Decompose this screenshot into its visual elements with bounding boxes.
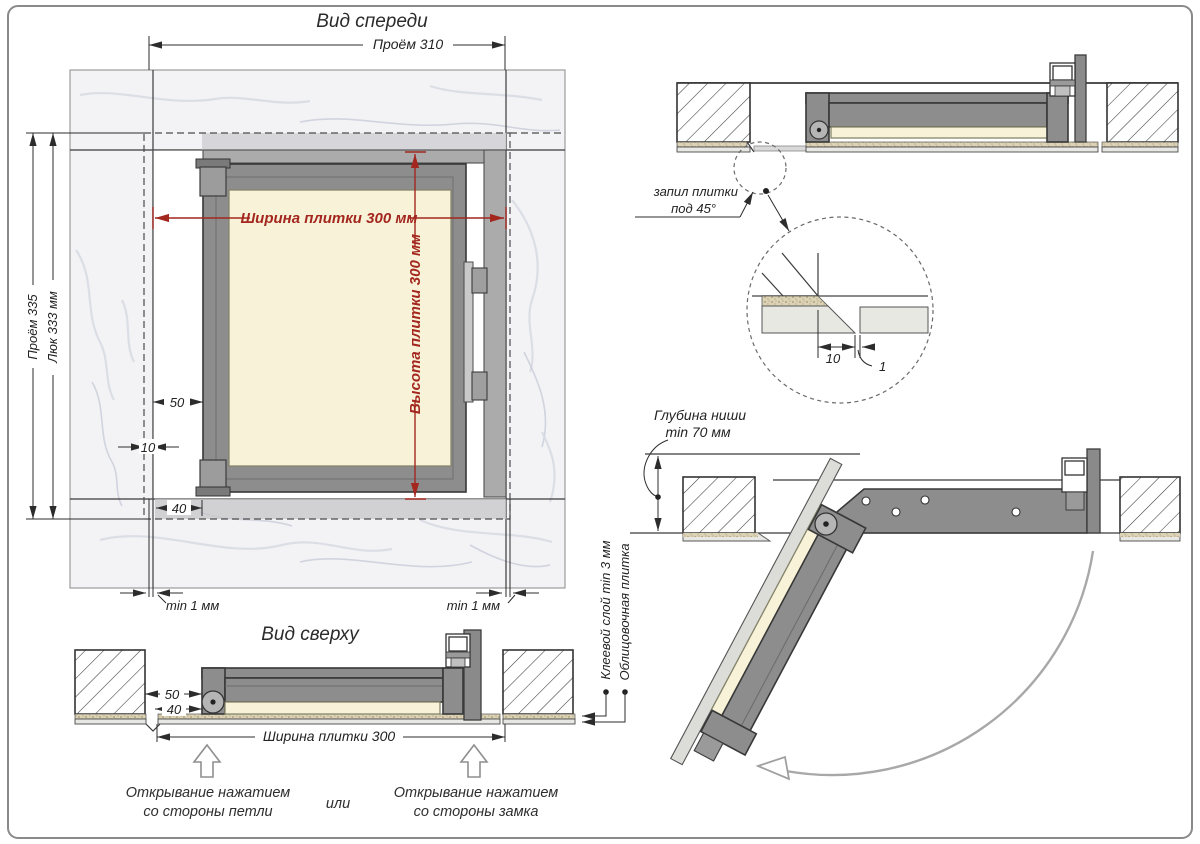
niche-depth-label-1: Глубина ниши bbox=[654, 407, 746, 423]
wall-section-left-open bbox=[683, 477, 755, 533]
drawing-page: Вид спереди Проём 310 Проём 335 Люк 333 … bbox=[0, 0, 1200, 844]
door-profile-closed bbox=[806, 93, 1068, 142]
wall-section-right bbox=[503, 650, 573, 714]
cut-45-label-1: запил плитки bbox=[653, 184, 738, 199]
wall-section-left bbox=[75, 650, 145, 714]
wall-section-left-closed bbox=[677, 83, 750, 142]
cut-45-label-2: под 45° bbox=[671, 201, 716, 216]
outer-frame-right-bar bbox=[484, 150, 506, 497]
detail-dim-10-label: 10 bbox=[826, 351, 841, 366]
detail-dim-1-label: 1 bbox=[879, 359, 886, 374]
frame-flange-top bbox=[202, 133, 506, 150]
outer-frame-top-bar bbox=[203, 150, 506, 163]
wall-section-right-open bbox=[1120, 477, 1180, 533]
open-hinge-label-1: Открывание нажатием bbox=[126, 785, 291, 801]
facing-tile-label: Облицовочная плитка bbox=[617, 543, 632, 680]
dim-40-front-label: 40 bbox=[172, 501, 187, 516]
dim-tile-height-label: Высота плитки 300 мм bbox=[407, 234, 424, 414]
or-label: или bbox=[326, 796, 350, 812]
dim-hatch-height-label: Люк 333 мм bbox=[45, 291, 60, 364]
niche-depth-label-2: min 70 мм bbox=[665, 424, 731, 440]
front-view-title: Вид спереди bbox=[316, 11, 428, 32]
dim-opening-height-label: Проём 335 bbox=[25, 294, 40, 360]
hinge-top-icon bbox=[196, 159, 230, 196]
dim-10-front-label: 10 bbox=[141, 440, 156, 455]
dim-40-top-label: 40 bbox=[167, 702, 182, 717]
open-latch-label-2: со стороны замка bbox=[414, 804, 539, 820]
door-profile bbox=[202, 668, 463, 714]
dim-tile-width-label: Ширина плитки 300 мм bbox=[240, 210, 417, 227]
open-latch-label-1: Открывание нажатием bbox=[394, 785, 559, 801]
front-view: Вид спереди Проём 310 Проём 335 Люк 333 … bbox=[25, 11, 565, 613]
technical-drawing: Вид спереди Проём 310 Проём 335 Люк 333 … bbox=[0, 0, 1200, 844]
dim-50-front-label: 50 bbox=[170, 395, 185, 410]
gap-min1-left-label: min 1 мм bbox=[166, 598, 219, 613]
gap-min1-right-label: min 1 мм bbox=[447, 598, 500, 613]
dim-50-top-label: 50 bbox=[165, 687, 180, 702]
frame-plate-open bbox=[831, 489, 1087, 533]
top-view-title: Вид сверху bbox=[261, 624, 360, 645]
frame-flange-bottom bbox=[155, 499, 506, 519]
detail-adhesive-layer bbox=[762, 296, 828, 306]
dim-opening-width-label: Проём 310 bbox=[373, 36, 444, 52]
glue-layer-label: Клеевой слой min 3 мм bbox=[598, 540, 613, 679]
open-hinge-label-2: со стороны петли bbox=[143, 804, 272, 820]
hinge-bottom-icon bbox=[196, 460, 230, 496]
wall-section-right-closed bbox=[1107, 83, 1178, 142]
dim-tile-width-top-label: Ширина плитки 300 bbox=[263, 728, 396, 744]
detail-tile-neighbor bbox=[860, 307, 928, 333]
